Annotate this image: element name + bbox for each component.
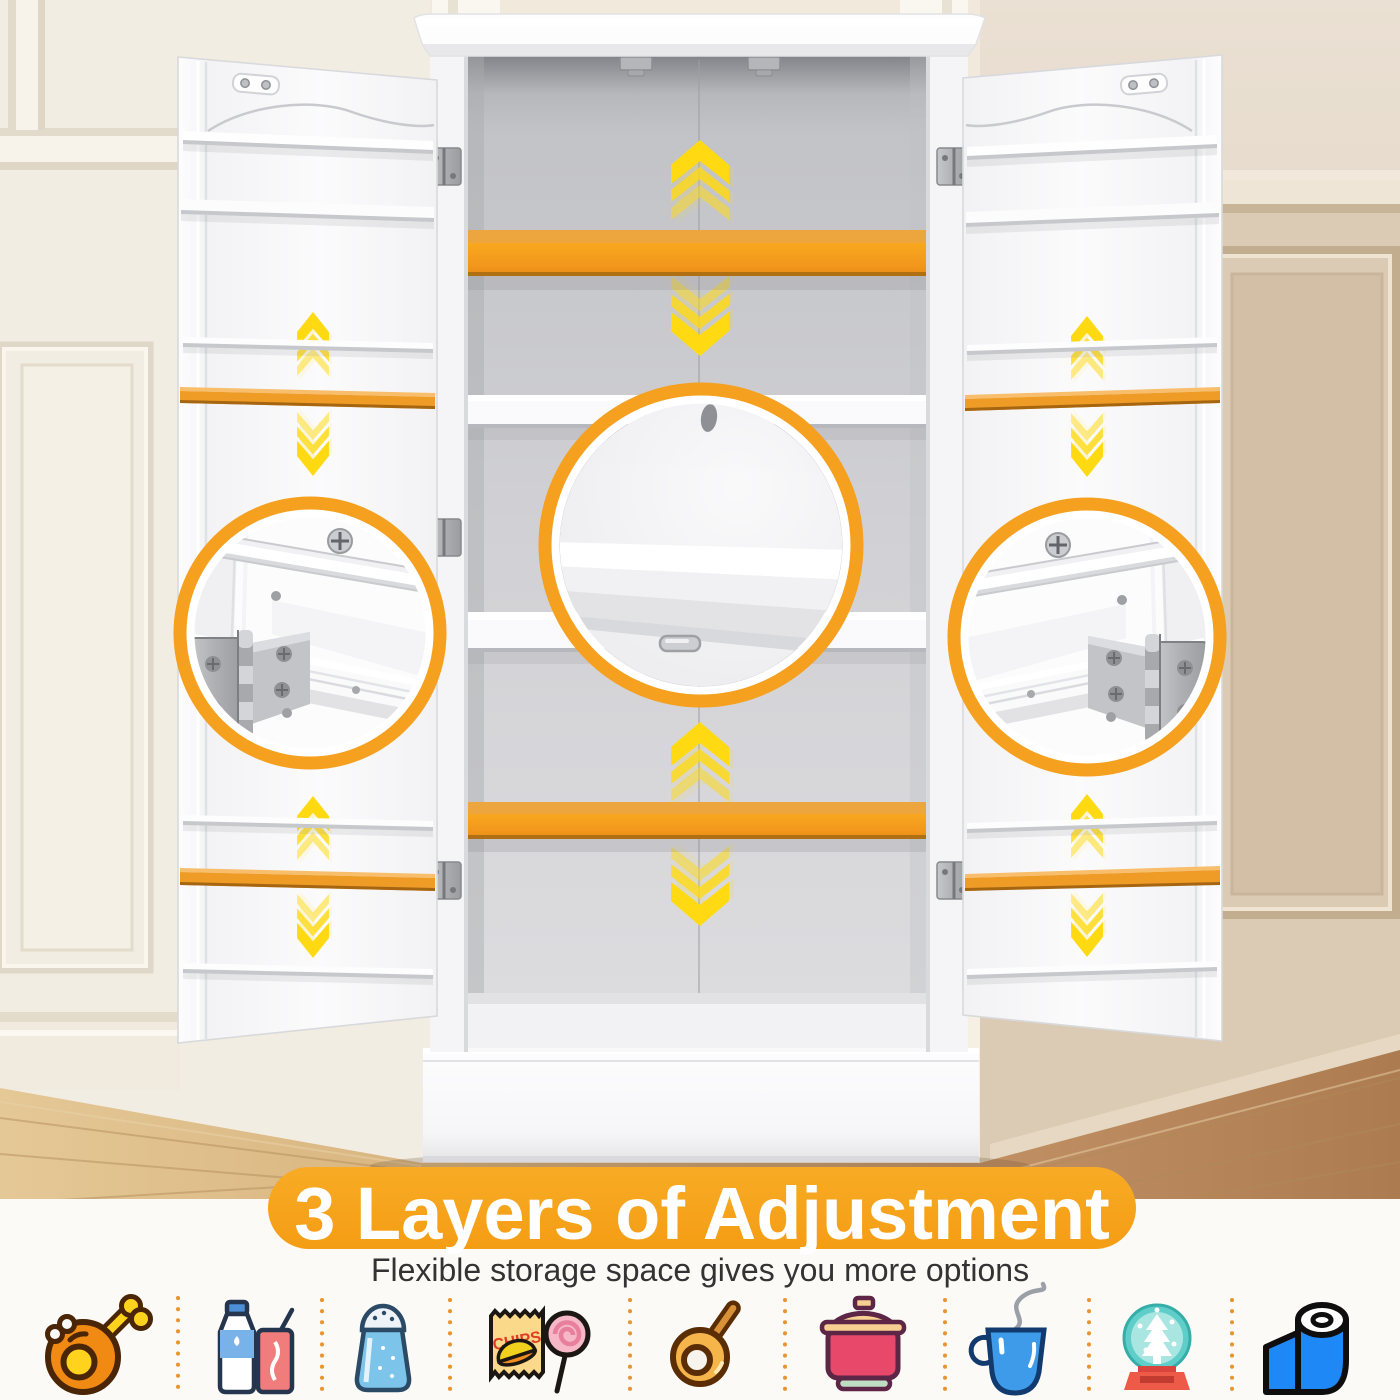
svg-text:Flexible storage space gives y: Flexible storage space gives you more op… bbox=[371, 1252, 1029, 1288]
svg-text:3 Layers of Adjustment: 3 Layers of Adjustment bbox=[294, 1172, 1110, 1255]
